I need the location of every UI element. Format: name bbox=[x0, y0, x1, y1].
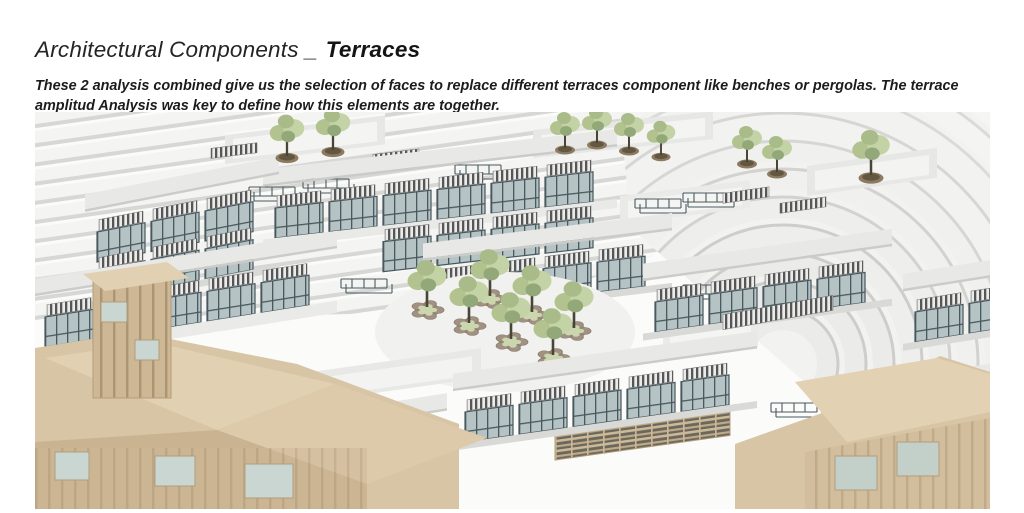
terraces-render-svg bbox=[35, 112, 990, 509]
page-title: Architectural Components _Terraces bbox=[35, 37, 420, 63]
terraces-render-figure bbox=[35, 112, 990, 509]
page-description-line1: These 2 analysis combined give us the se… bbox=[35, 78, 958, 94]
page-title-bold: Terraces bbox=[326, 37, 421, 62]
page-title-regular: Architectural Components _ bbox=[35, 37, 318, 62]
page-description: These 2 analysis combined give us the se… bbox=[35, 77, 965, 116]
